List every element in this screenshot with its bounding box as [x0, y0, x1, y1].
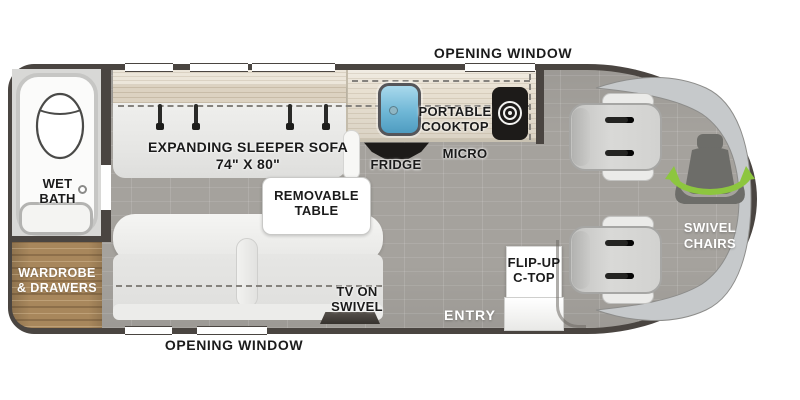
label-line1: FLIP-UP: [506, 255, 562, 270]
opening-window-bottom-2: [197, 326, 267, 335]
label-line2: SWIVEL: [307, 299, 407, 314]
seat-backrest: [572, 108, 590, 166]
seatbelt-icon: [194, 104, 198, 127]
sofa-headboard: [113, 85, 346, 103]
entry-step: [504, 297, 564, 331]
wet-bath-label: WET BATH: [20, 176, 95, 207]
seatbelt-icon: [324, 104, 328, 127]
bath-wall-upper: [101, 64, 111, 165]
bath-door-opening: [101, 165, 111, 210]
seatbelt-icon: [288, 104, 292, 127]
toilet-icon: [33, 86, 87, 160]
label-line1: WET: [20, 176, 95, 191]
tv-on-swivel-label: TV ON SWIVEL: [307, 284, 407, 315]
label-line1: SWIVEL: [660, 220, 760, 236]
opening-window-bottom-label: OPENING WINDOW: [144, 337, 324, 354]
label-text: OPENING WINDOW: [434, 45, 572, 61]
portable-cooktop-label: PORTABLE COOKTOP: [405, 104, 505, 135]
swivel-seat-icon: [664, 134, 756, 220]
sofa-headboard-trim: [113, 70, 346, 85]
seat-rail-bar: [605, 240, 634, 246]
label-line2: COOKTOP: [405, 119, 505, 134]
label-line1: WARDROBE: [11, 266, 103, 281]
rv-floorplan: OPENING WINDOW OPENING WINDOW EXPANDING …: [0, 0, 800, 400]
shower-pan: [19, 202, 93, 235]
bench-armrest: [236, 238, 258, 308]
sleeper-sofa-label: EXPANDING SLEEPER SOFA 74" X 80": [143, 139, 353, 172]
bath-wardrobe-divider-wall: [12, 236, 111, 242]
label-text: OPENING WINDOW: [165, 337, 303, 353]
overhead-cabinet-dashed-line: [352, 80, 530, 82]
opening-window-bottom-1: [125, 326, 172, 335]
removable-table-label: REMOVABLE TABLE: [264, 188, 369, 219]
seat-rail-bar: [605, 150, 634, 156]
label-text: ENTRY: [444, 307, 496, 323]
label-line1: REMOVABLE: [264, 188, 369, 203]
label-line2: & DRAWERS: [11, 281, 103, 296]
label-line2: TABLE: [264, 203, 369, 218]
label-line2: 74" X 80": [143, 156, 353, 173]
passenger-swivel-seat: [569, 103, 662, 171]
label-line1: PORTABLE: [405, 104, 505, 119]
opening-window-top-4: [465, 63, 535, 72]
wardrobe-label: WARDROBE & DRAWERS: [11, 266, 103, 296]
label-line1: EXPANDING SLEEPER SOFA: [143, 139, 353, 156]
flip-up-ctop-label: FLIP-UP C-TOP: [506, 255, 562, 286]
burner-center-dot: [508, 111, 512, 115]
seat-rail-bar: [605, 117, 634, 123]
label-text: MICRO: [443, 146, 488, 161]
driver-swivel-seat: [569, 226, 662, 294]
kitchen-end-wall: [536, 64, 544, 144]
opening-window-top-label: OPENING WINDOW: [413, 45, 593, 62]
seatbelt-icon: [158, 104, 162, 127]
entry-label: ENTRY: [440, 307, 500, 324]
opening-window-top-3: [252, 63, 335, 72]
label-line2: C-TOP: [506, 270, 562, 285]
counter-end-dashed-line: [529, 74, 531, 140]
opening-window-top-1: [125, 63, 173, 72]
seat-rail-bar: [605, 273, 634, 279]
label-line2: BATH: [20, 191, 95, 206]
micro-label: MICRO: [425, 146, 505, 161]
label-line1: TV ON: [307, 284, 407, 299]
label-line2: CHAIRS: [660, 236, 760, 252]
label-text: FRIDGE: [371, 157, 422, 172]
sink-drain-icon: [389, 106, 398, 115]
seat-backrest: [572, 231, 590, 289]
swivel-chairs-label: SWIVEL CHAIRS: [660, 220, 760, 251]
opening-window-top-2: [190, 63, 248, 72]
